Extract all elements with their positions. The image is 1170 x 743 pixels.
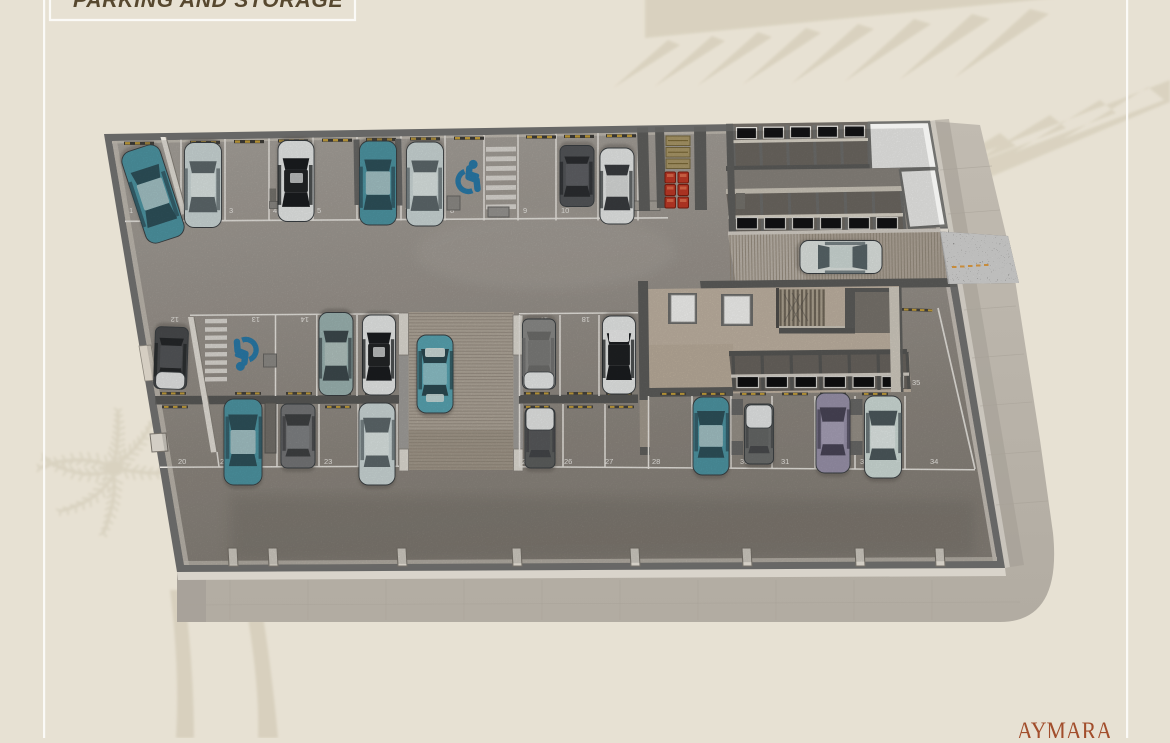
svg-text:PARKING AND STORAGE: PARKING AND STORAGE bbox=[73, 0, 344, 12]
svg-text:AYMARA: AYMARA bbox=[1017, 718, 1112, 738]
